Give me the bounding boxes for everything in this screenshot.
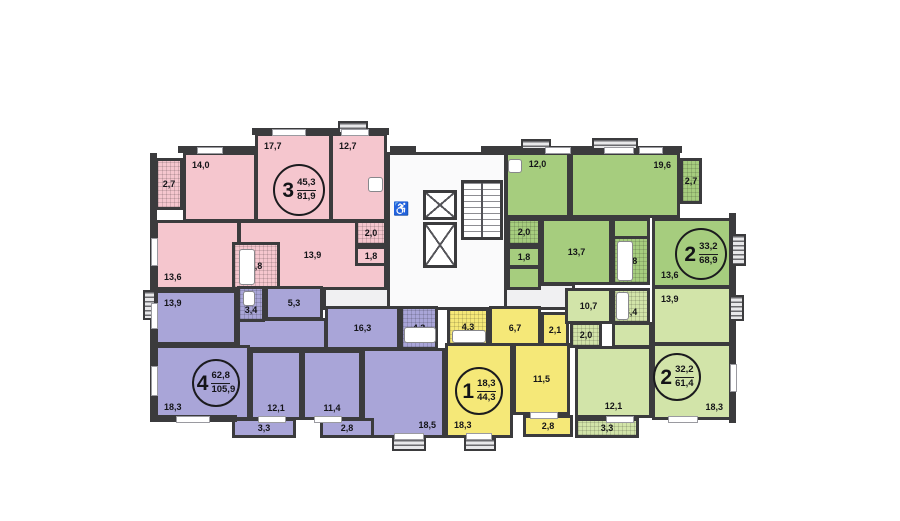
- room: 12,1: [250, 350, 302, 420]
- window-opening: [606, 416, 634, 423]
- room: 2,7: [680, 158, 702, 204]
- room-area-label: 2,0: [580, 330, 593, 340]
- room: 18,5: [362, 348, 445, 438]
- room-hall: [237, 318, 327, 350]
- apartment-rooms-count: 4: [197, 373, 209, 394]
- vent-grille: [729, 295, 744, 321]
- window-opening: [466, 433, 492, 440]
- window-opening: [394, 433, 424, 440]
- room-area-label: 18,3: [164, 402, 182, 412]
- wall-segment: [150, 153, 157, 293]
- window-opening: [668, 416, 698, 423]
- room-area-label: 3,3: [601, 423, 614, 433]
- room-area-label: 1,8: [365, 251, 378, 261]
- stove-fixture: [368, 177, 383, 192]
- window-opening: [151, 238, 158, 266]
- room-area-label: 2,7: [685, 176, 698, 186]
- room-area-label: 5,3: [288, 298, 301, 308]
- room-area-label: 3,4: [245, 305, 258, 315]
- window-opening: [604, 147, 634, 154]
- room: 12,1: [575, 346, 652, 418]
- living-area-value: 18,3: [477, 378, 496, 392]
- window-opening: [639, 147, 663, 154]
- apartment-area-fraction: 45,381,9: [297, 177, 316, 203]
- room-area-label: 2,0: [365, 228, 378, 238]
- floor-plan: 2,714,017,712,713,613,94,82,01,813,93,45…: [0, 0, 900, 521]
- living-area-value: 33,2: [699, 241, 718, 255]
- total-area-value: 105,9: [211, 384, 235, 396]
- elevator-shaft: [423, 222, 457, 268]
- room-area-label: 1,8: [518, 252, 531, 262]
- apartment-area-fraction: 62,8105,9: [211, 370, 235, 396]
- toilet-fixture: [243, 291, 255, 306]
- room-area-label: 2,8: [542, 421, 555, 431]
- room: 16,3: [325, 306, 400, 350]
- room: 2,7: [155, 158, 183, 210]
- bathtub-fixture: [616, 292, 629, 320]
- room-hall: [507, 266, 541, 290]
- vent-grille: [731, 234, 746, 266]
- room: 13,7: [541, 218, 612, 285]
- window-opening: [151, 303, 158, 329]
- room-area-label: 13,9: [304, 250, 322, 260]
- room-area-label: 19,6: [653, 160, 671, 170]
- window-opening: [530, 412, 558, 419]
- room-area-label: 18,5: [418, 420, 436, 430]
- total-area-value: 44,3: [477, 392, 496, 404]
- window-opening: [730, 364, 737, 392]
- apartment-badge: 118,344,3: [455, 367, 503, 415]
- room: 11,5: [513, 343, 570, 415]
- apartment-rooms-count: 1: [462, 381, 474, 402]
- living-area-value: 45,3: [297, 177, 316, 191]
- room-area-label: 10,7: [580, 301, 598, 311]
- apartment-badge: 462,8105,9: [192, 359, 240, 407]
- window-opening: [314, 416, 342, 423]
- apartment-rooms-count: 2: [684, 244, 696, 265]
- room: 11,4: [302, 350, 362, 420]
- staircase: [461, 180, 503, 240]
- window-opening: [341, 129, 369, 136]
- window-opening: [272, 129, 306, 136]
- room-area-label: 2,7: [163, 179, 176, 189]
- window-opening: [176, 416, 210, 423]
- room-hall: [612, 322, 652, 348]
- room-area-label: 18,3: [705, 402, 723, 412]
- room-area-label: 11,5: [533, 374, 550, 384]
- room-area-label: 2,0: [518, 227, 531, 237]
- apartment-rooms-count: 2: [660, 367, 672, 388]
- total-area-value: 61,4: [675, 378, 694, 390]
- room-area-label: 3,3: [258, 423, 271, 433]
- room: 13,6: [155, 220, 240, 290]
- room-area-label: 2,1: [549, 325, 562, 335]
- bathtub-fixture: [404, 327, 436, 343]
- window-opening: [545, 147, 571, 154]
- window-opening: [258, 416, 286, 423]
- room: 2,0: [355, 220, 387, 246]
- apartment-badge: 233,268,9: [675, 228, 727, 280]
- total-area-value: 68,9: [699, 255, 718, 267]
- room-area-label: 13,6: [661, 270, 679, 280]
- room: 10,7: [565, 288, 612, 324]
- bathtub-fixture: [239, 249, 255, 285]
- room: 1,8: [355, 246, 387, 266]
- room-area-label: 11,4: [323, 403, 340, 413]
- room: 2,0: [507, 218, 541, 246]
- room-area-label: 2,8: [341, 423, 354, 433]
- room-area-label: 12,0: [529, 159, 547, 169]
- room-area-label: 16,3: [354, 323, 372, 333]
- elevator-shaft: [423, 190, 457, 220]
- room-area-label: 13,9: [661, 294, 679, 304]
- apartment-area-fraction: 32,261,4: [675, 364, 694, 390]
- apartment-badge: 232,261,4: [653, 353, 701, 401]
- wall-segment: [390, 146, 416, 153]
- window-opening: [197, 147, 223, 154]
- room: 14,0: [183, 152, 257, 222]
- room-area-label: 13,6: [164, 272, 182, 282]
- room-area-label: 18,3: [454, 420, 472, 430]
- room: 1,8: [507, 246, 541, 268]
- living-area-value: 62,8: [211, 370, 230, 384]
- room: 2,0: [570, 322, 602, 348]
- window-opening: [151, 366, 158, 396]
- apartment-rooms-count: 3: [282, 180, 294, 201]
- room: 13,9: [652, 286, 732, 345]
- living-area-value: 32,2: [675, 364, 694, 378]
- room: 19,6: [570, 152, 680, 218]
- room-area-label: 14,0: [192, 160, 210, 170]
- bathtub-fixture: [617, 241, 633, 281]
- total-area-value: 81,9: [297, 191, 316, 203]
- room-area-label: 13,7: [568, 247, 586, 257]
- room: 13,9: [155, 290, 237, 345]
- room-area-label: 13,9: [164, 298, 182, 308]
- room: 5,3: [265, 286, 323, 320]
- apartment-badge: 345,381,9: [273, 164, 325, 216]
- wall-segment: [481, 146, 507, 153]
- room-area-label: 17,7: [264, 141, 282, 151]
- room-area-label: 12,7: [339, 141, 357, 151]
- wheelchair-accessible-icon: ♿: [393, 202, 409, 215]
- apartment-area-fraction: 18,344,3: [477, 378, 496, 404]
- room-area-label: 6,7: [509, 323, 522, 333]
- room-area-label: 12,1: [605, 401, 623, 411]
- stove-fixture: [508, 159, 522, 173]
- apartment-area-fraction: 33,268,9: [699, 241, 718, 267]
- room-area-label: 12,1: [267, 403, 285, 413]
- bathtub-fixture: [452, 330, 486, 343]
